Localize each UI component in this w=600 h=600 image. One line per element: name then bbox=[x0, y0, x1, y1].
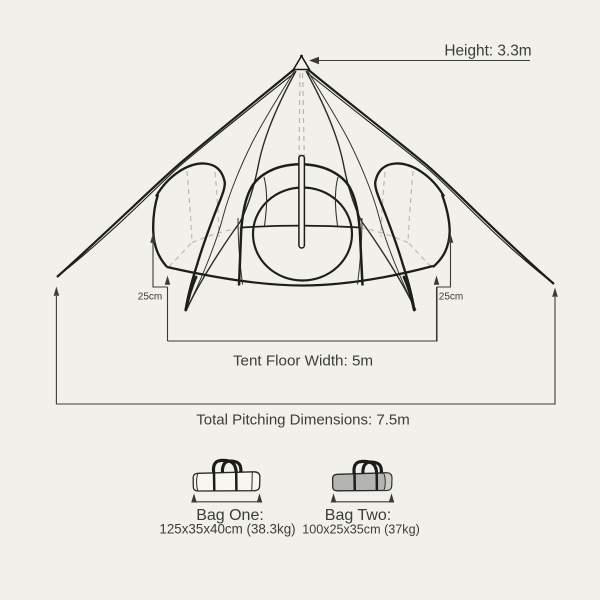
svg-text:100x25x35cm (37kg): 100x25x35cm (37kg) bbox=[302, 523, 420, 537]
svg-text:25cm: 25cm bbox=[439, 292, 463, 303]
svg-text:Height: 3.3m: Height: 3.3m bbox=[444, 43, 531, 60]
svg-text:25cm: 25cm bbox=[138, 292, 162, 303]
svg-text:Bag Two:: Bag Two: bbox=[325, 507, 391, 524]
svg-text:Total Pitching Dimensions: 7.5: Total Pitching Dimensions: 7.5m bbox=[196, 412, 409, 429]
svg-text:125x35x40cm (38.3kg): 125x35x40cm (38.3kg) bbox=[159, 522, 295, 537]
svg-text:Tent Floor Width: 5m: Tent Floor Width: 5m bbox=[233, 353, 373, 370]
